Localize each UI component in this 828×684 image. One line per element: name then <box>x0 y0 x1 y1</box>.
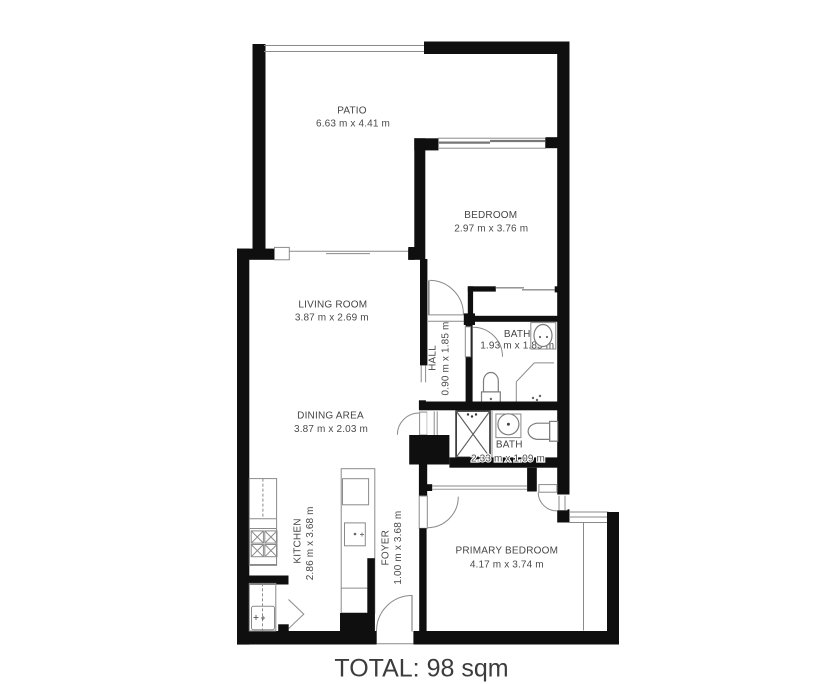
svg-text:BATH: BATH <box>504 329 531 340</box>
svg-text:PRIMARY BEDROOM: PRIMARY BEDROOM <box>455 546 558 557</box>
svg-text:KITCHEN: KITCHEN <box>293 518 304 563</box>
svg-text:TOTAL: 98 sqm: TOTAL: 98 sqm <box>334 655 508 683</box>
svg-text:3.87 m x 2.03 m: 3.87 m x 2.03 m <box>294 424 368 435</box>
svg-text:0.90 m x 1.85 m: 0.90 m x 1.85 m <box>441 322 452 396</box>
svg-text:2.33 m x 1.09 m: 2.33 m x 1.09 m <box>471 454 545 465</box>
svg-text:2.86 m x 3.68 m: 2.86 m x 3.68 m <box>305 506 316 580</box>
svg-text:BATH: BATH <box>496 440 523 451</box>
svg-text:6.63 m x 4.41 m: 6.63 m x 4.41 m <box>316 119 390 130</box>
svg-text:2.97 m x 3.76 m: 2.97 m x 3.76 m <box>454 224 528 235</box>
svg-text:FOYER: FOYER <box>380 530 391 565</box>
svg-text:LIVING ROOM: LIVING ROOM <box>298 300 367 311</box>
svg-text:3.87 m x 2.69 m: 3.87 m x 2.69 m <box>295 313 369 324</box>
svg-text:1.00 m x 3.68 m: 1.00 m x 3.68 m <box>393 511 404 585</box>
svg-text:BEDROOM: BEDROOM <box>464 210 517 221</box>
svg-text:PATIO: PATIO <box>337 106 367 117</box>
svg-text:4.17 m x 3.74 m: 4.17 m x 3.74 m <box>470 560 544 571</box>
svg-text:DINING AREA: DINING AREA <box>297 411 364 422</box>
svg-text:HALL: HALL <box>428 345 439 371</box>
